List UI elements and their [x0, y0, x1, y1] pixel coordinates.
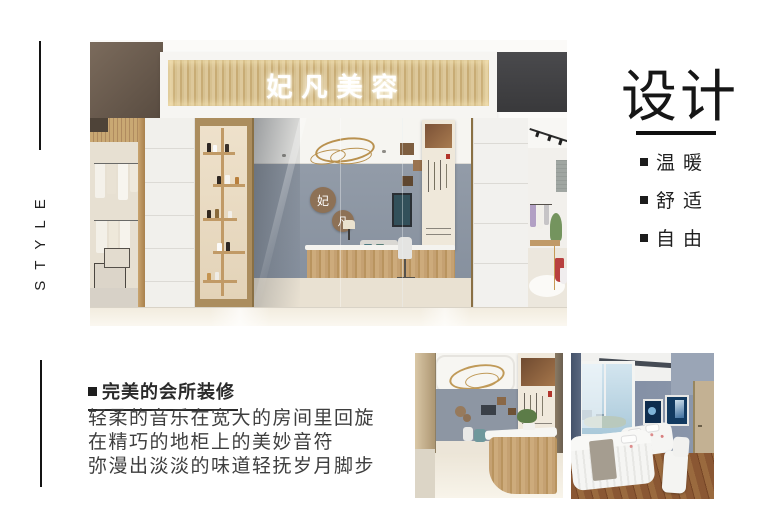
- product-bottle: [215, 272, 219, 280]
- garment: [537, 205, 543, 229]
- product-bottle: [215, 209, 219, 218]
- reception-photo: [415, 353, 563, 498]
- reception-desk: [489, 437, 557, 494]
- product-bottle: [225, 175, 230, 184]
- table-lamp-stem: [348, 229, 350, 240]
- bonsai-pot: [523, 423, 535, 430]
- feature-list: 温暖 舒适 自由: [640, 148, 710, 262]
- shelf: [213, 184, 245, 187]
- design-title: 设计: [621, 52, 739, 133]
- calligraphy-banner: [422, 120, 455, 250]
- display-bench: [530, 240, 560, 246]
- feature-label: 温暖: [656, 148, 710, 175]
- article-heading-text: 完美的会所装修: [102, 378, 235, 404]
- poster-page: STYLE 妃凡美容: [0, 0, 763, 522]
- neighbor-store-right: [528, 118, 567, 307]
- office-chair-post: [404, 259, 406, 277]
- stool: [672, 436, 689, 457]
- wall-logo-disc: 妃: [310, 187, 336, 213]
- glass-seam: [402, 118, 403, 307]
- wood-cabinet-wall: [415, 353, 436, 457]
- garment: [130, 164, 138, 192]
- garment: [120, 221, 130, 251]
- window: [579, 361, 635, 437]
- downlight: [382, 150, 386, 153]
- square-bullet-icon: [640, 158, 648, 166]
- floor-reflection: [210, 308, 270, 326]
- art-frame: [665, 395, 689, 426]
- office-chair: [398, 237, 412, 259]
- feature-item: 温暖: [640, 148, 710, 175]
- bonsai-plant: [517, 409, 537, 423]
- article-line: 弥漫出淡淡的味道轻抚岁月脚步: [88, 455, 375, 479]
- sign-text: 妃凡美容: [160, 52, 497, 118]
- garment: [107, 164, 116, 194]
- feature-label: 舒适: [656, 186, 710, 213]
- floor-reflection: [420, 308, 470, 326]
- store-sign: 妃凡美容: [160, 52, 497, 118]
- article-line: 在精巧的地柜上的美妙音符: [88, 431, 375, 455]
- feature-item: 自由: [640, 224, 710, 251]
- article-line: 轻柔的音乐在宽大的房间里回旋: [88, 407, 375, 431]
- product-cabinet: [195, 118, 252, 307]
- treatment-photo: [571, 353, 714, 499]
- shelf: [213, 251, 245, 254]
- white-dress: [560, 268, 567, 284]
- salon-interior: 妃 凡: [252, 118, 473, 307]
- storefront-photo: 妃凡美容: [90, 40, 567, 326]
- garment: [95, 164, 105, 198]
- style-vertical-text: STYLE: [32, 162, 49, 317]
- product-bottle: [207, 143, 211, 152]
- glass-frame: [252, 118, 254, 307]
- product-bottle: [207, 273, 211, 280]
- floor-shadow: [415, 449, 435, 498]
- feature-label: 自由: [656, 224, 710, 251]
- garment: [530, 205, 536, 227]
- product-bottle: [207, 210, 211, 218]
- chair: [463, 427, 473, 441]
- square-bullet-icon: [640, 196, 648, 204]
- garment: [544, 205, 549, 225]
- brick-wall: [556, 160, 567, 192]
- product-bottle: [225, 144, 229, 152]
- display-table: [104, 248, 130, 268]
- wall-logo-disc: [463, 414, 471, 422]
- dark-fascia-panel: [497, 52, 567, 112]
- square-bullet-icon: [640, 234, 648, 242]
- glass-seam: [340, 118, 341, 307]
- shelf: [203, 218, 237, 221]
- square-bullet-icon: [88, 387, 97, 396]
- wall-box: [402, 176, 413, 186]
- design-title-rule: [636, 131, 716, 135]
- dark-soffit-wedge: [90, 118, 108, 132]
- feature-item: 舒适: [640, 186, 710, 213]
- article-body: 轻柔的音乐在宽大的房间里回旋 在精巧的地柜上的美妙音符 弥漫出淡淡的味道轻抚岁月…: [88, 407, 375, 479]
- tv-screen: [481, 405, 496, 415]
- wall-box: [497, 397, 506, 405]
- table-lamp: [343, 220, 355, 229]
- store-floor: [90, 288, 145, 307]
- top-vertical-rule: [39, 41, 41, 150]
- shelf: [203, 280, 237, 283]
- bottom-vertical-rule: [40, 360, 42, 487]
- art-frame: [643, 399, 663, 425]
- walkway-floor: [90, 307, 567, 326]
- garment: [109, 221, 118, 249]
- product-bottle: [217, 243, 222, 251]
- white-pillar-left: [145, 118, 195, 307]
- garment: [118, 164, 128, 200]
- product-bottle: [217, 176, 221, 184]
- shelf: [203, 152, 235, 155]
- plant: [550, 213, 562, 241]
- product-bottle: [228, 211, 232, 218]
- wood-post: [138, 118, 145, 307]
- neighbor-store-left: [90, 118, 145, 307]
- brown-fascia-panel: [90, 42, 163, 120]
- product-bottle: [213, 145, 217, 152]
- wall-logo-char: 妃: [317, 192, 329, 209]
- product-bottle: [235, 177, 239, 184]
- white-pillar-right: [473, 118, 528, 307]
- massage-bed-near: [571, 429, 656, 491]
- wall-box: [508, 408, 516, 415]
- product-bottle: [226, 242, 230, 251]
